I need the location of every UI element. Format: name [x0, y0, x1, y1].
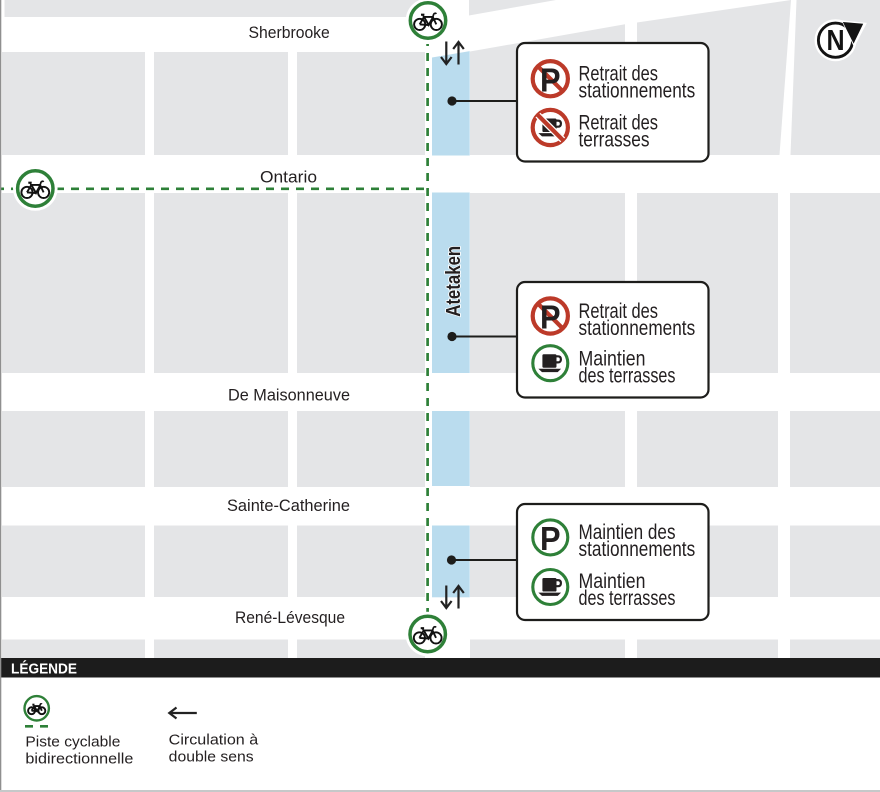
svg-text:N: N	[826, 24, 844, 56]
svg-text:Circulation à: Circulation à	[169, 732, 259, 749]
svg-text:Sainte-Catherine: Sainte-Catherine	[227, 496, 350, 515]
svg-text:stationnements: stationnements	[579, 317, 696, 340]
svg-text:des terrasses: des terrasses	[579, 587, 676, 610]
svg-text:stationnements: stationnements	[579, 80, 696, 103]
svg-text:Atetaken: Atetaken	[443, 246, 465, 317]
svg-text:terrasses: terrasses	[579, 129, 650, 152]
svg-text:stationnements: stationnements	[579, 538, 696, 561]
svg-text:des terrasses: des terrasses	[579, 365, 676, 388]
svg-text:double sens: double sens	[169, 749, 254, 766]
svg-text:René-Lévesque: René-Lévesque	[235, 608, 345, 627]
svg-text:Piste cyclable: Piste cyclable	[25, 734, 120, 751]
svg-text:De Maisonneuve: De Maisonneuve	[228, 386, 350, 405]
svg-text:bidirectionnelle: bidirectionnelle	[25, 751, 133, 768]
svg-text:Sherbrooke: Sherbrooke	[249, 23, 330, 42]
svg-text:Ontario: Ontario	[260, 168, 317, 187]
svg-text:LÉGENDE: LÉGENDE	[11, 661, 77, 678]
